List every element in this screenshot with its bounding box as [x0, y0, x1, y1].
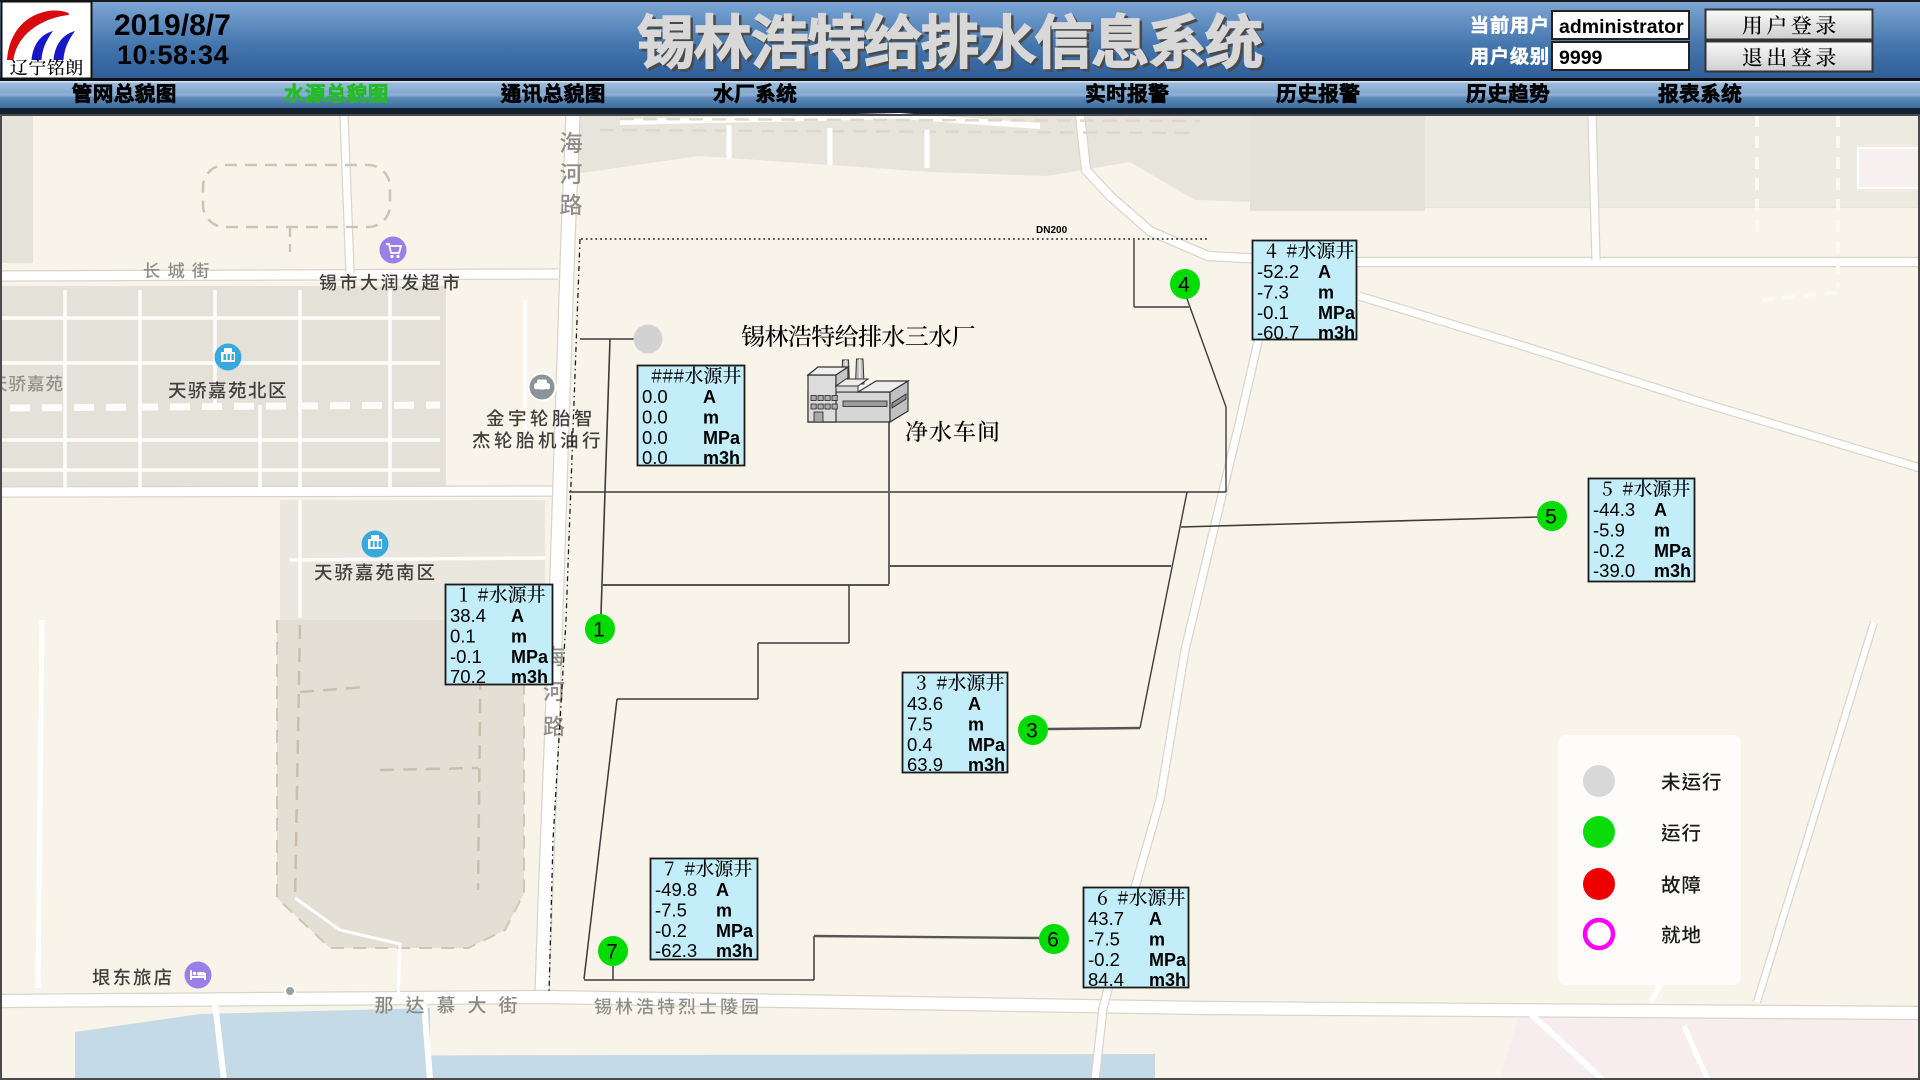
svg-text:7.5: 7.5: [907, 713, 933, 734]
svg-text:-0.2: -0.2: [655, 920, 687, 941]
svg-text:84.4: 84.4: [1088, 969, 1124, 990]
svg-text:m: m: [511, 626, 527, 646]
svg-text:-62.3: -62.3: [655, 940, 697, 961]
svg-text:m3h: m3h: [716, 941, 753, 961]
svg-text:0.0: 0.0: [642, 406, 668, 427]
svg-text:9999: 9999: [1559, 47, 1603, 69]
svg-text:70.2: 70.2: [450, 666, 486, 687]
svg-text:7: 7: [606, 941, 618, 964]
svg-text:m3h: m3h: [1149, 970, 1186, 990]
svg-text:m: m: [1318, 282, 1334, 302]
svg-text:MPa: MPa: [968, 735, 1006, 755]
svg-text:-60.7: -60.7: [1257, 322, 1299, 343]
svg-text:5: 5: [1545, 506, 1557, 529]
svg-text:0.0: 0.0: [642, 386, 668, 407]
svg-text:-0.2: -0.2: [1088, 949, 1120, 970]
svg-text:38.4: 38.4: [450, 605, 486, 626]
svg-text:-44.3: -44.3: [1593, 499, 1635, 520]
svg-text:-52.2: -52.2: [1257, 261, 1299, 282]
svg-text:m: m: [716, 900, 732, 920]
svg-text:2019/8/7: 2019/8/7: [114, 9, 231, 42]
svg-text:0.0: 0.0: [642, 427, 668, 448]
svg-text:-0.2: -0.2: [1593, 540, 1625, 561]
svg-text:6: 6: [1047, 929, 1059, 952]
svg-text:m: m: [703, 407, 719, 427]
svg-text:-0.1: -0.1: [1257, 302, 1289, 323]
svg-text:-7.3: -7.3: [1257, 281, 1289, 302]
svg-text:3: 3: [1026, 720, 1038, 743]
svg-text:m: m: [1149, 929, 1165, 949]
svg-text:A: A: [1654, 500, 1667, 520]
svg-text:A: A: [968, 694, 981, 714]
svg-text:0.4: 0.4: [907, 734, 933, 755]
svg-text:m: m: [968, 714, 984, 734]
svg-text:MPa: MPa: [1654, 541, 1692, 561]
svg-text:-39.0: -39.0: [1593, 560, 1635, 581]
svg-text:MPa: MPa: [1149, 950, 1187, 970]
svg-text:-49.8: -49.8: [655, 879, 697, 900]
svg-text:-5.9: -5.9: [1593, 519, 1625, 540]
svg-text:A: A: [716, 880, 729, 900]
svg-text:-7.5: -7.5: [655, 899, 687, 920]
svg-text:MPa: MPa: [703, 428, 741, 448]
svg-text:63.9: 63.9: [907, 754, 943, 775]
svg-text:0.1: 0.1: [450, 625, 476, 646]
svg-text:MPa: MPa: [511, 647, 549, 667]
svg-text:10:58:34: 10:58:34: [117, 40, 229, 70]
svg-text:43.7: 43.7: [1088, 908, 1124, 929]
svg-text:A: A: [511, 606, 524, 626]
svg-text:m3h: m3h: [968, 755, 1005, 775]
svg-text:m: m: [1654, 520, 1670, 540]
svg-text:-0.1: -0.1: [450, 646, 482, 667]
svg-text:MPa: MPa: [716, 921, 754, 941]
svg-text:m3h: m3h: [511, 667, 548, 687]
svg-text:-7.5: -7.5: [1088, 928, 1120, 949]
svg-text:DN200: DN200: [1036, 225, 1068, 236]
svg-text:4: 4: [1178, 274, 1190, 297]
svg-text:A: A: [1318, 262, 1331, 282]
svg-text:m3h: m3h: [1654, 561, 1691, 581]
svg-text:43.6: 43.6: [907, 693, 943, 714]
svg-text:MPa: MPa: [1318, 303, 1356, 323]
svg-text:0.0: 0.0: [642, 447, 668, 468]
svg-text:administrator: administrator: [1559, 16, 1684, 38]
svg-text:A: A: [1149, 909, 1162, 929]
svg-text:A: A: [703, 387, 716, 407]
svg-text:1: 1: [593, 619, 605, 642]
svg-text:m3h: m3h: [1318, 323, 1355, 343]
svg-text:m3h: m3h: [703, 448, 740, 468]
